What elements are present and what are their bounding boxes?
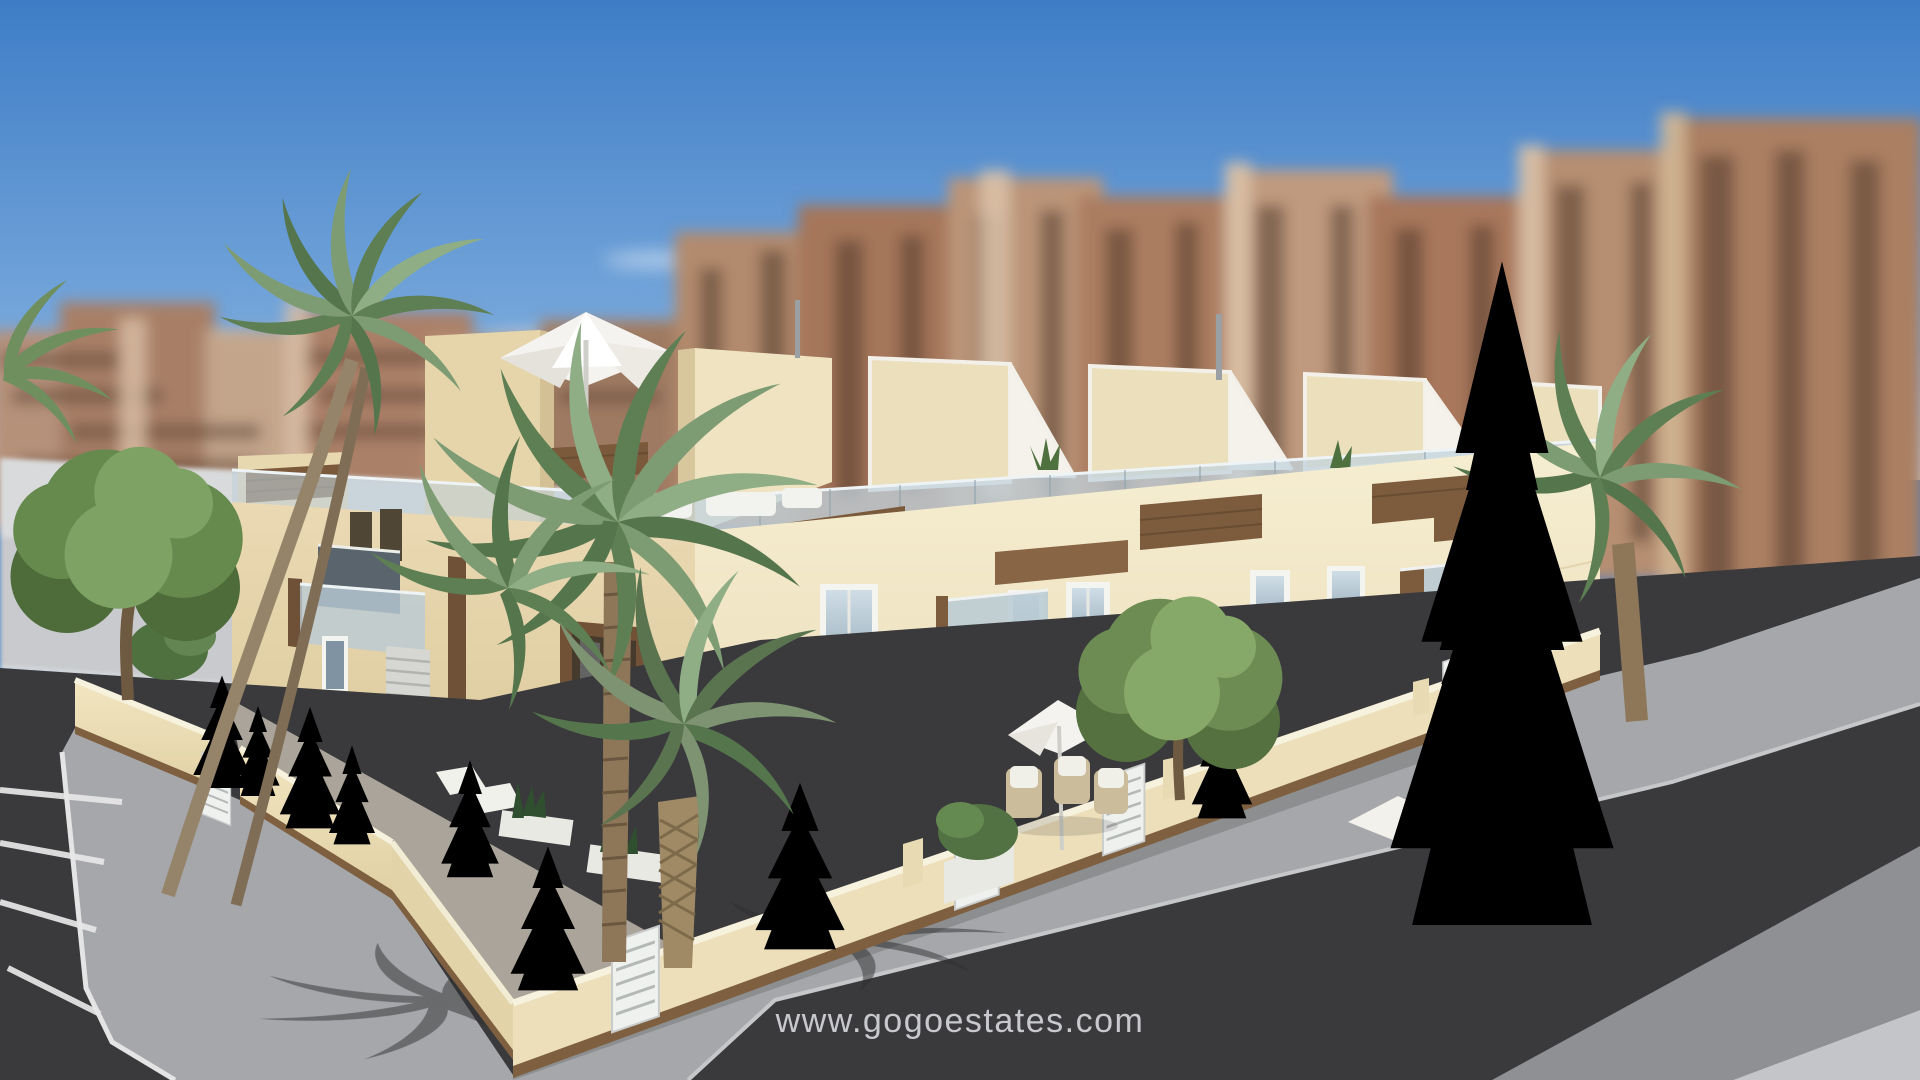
- render-image: www.gogoestates.com: [0, 0, 1920, 1080]
- watermark: www.gogoestates.com: [0, 1002, 1920, 1041]
- roof-antenna: [1216, 314, 1222, 380]
- scene-canvas: [0, 0, 1920, 1080]
